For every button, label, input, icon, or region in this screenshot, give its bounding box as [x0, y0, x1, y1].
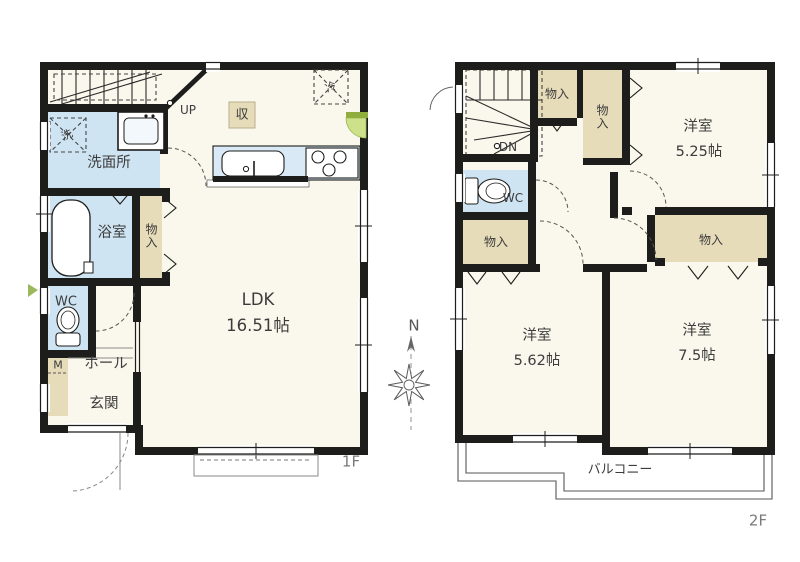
compass-north-label: N: [408, 319, 419, 334]
washroom-label: 洗面所: [87, 156, 131, 171]
kitchen-sink: [222, 151, 284, 176]
sliding-door: [133, 322, 141, 372]
compass-icon: [388, 336, 430, 430]
bath-stool: [84, 262, 93, 273]
storage-a-label: 物入: [545, 88, 569, 100]
plant-icon: [28, 284, 38, 297]
bedroom3-size-label: 7.5帖: [678, 349, 716, 364]
bedroom2-label: 洋室: [523, 329, 552, 344]
wc2-label: WC: [503, 192, 523, 204]
closet-label: 収: [235, 109, 248, 122]
storage1f-label: 物入: [145, 223, 157, 249]
meter-label: M: [53, 360, 63, 371]
stairs-dn-label: DN: [499, 141, 517, 153]
bedroom1-label: 洋室: [684, 120, 713, 135]
hall-label: ホール: [84, 357, 128, 372]
ldk-size-label: 16.51帖: [226, 318, 290, 335]
storage-b-label: 物入: [596, 104, 608, 130]
floor2-label: 2F: [749, 514, 767, 529]
toilet-1f: [56, 307, 80, 346]
vanity-sink: [118, 112, 164, 150]
floor-plan-drawing: [0, 0, 800, 562]
stairs-up-label: UP: [180, 104, 196, 116]
wc1-label: WC: [55, 296, 77, 309]
floor1-plan: [28, 60, 372, 491]
ldk-label: LDK: [242, 292, 275, 309]
storage-c-label: 物入: [484, 236, 508, 248]
floor-plan: UP 収 冷 洗 洗面所 浴室 物入 WC M ホール 玄関 LDK 16.51…: [0, 0, 800, 562]
bedroom2-size-label: 5.62帖: [514, 354, 561, 369]
floor1-label: 1F: [342, 455, 360, 470]
storage-d-label: 物入: [699, 234, 723, 246]
bedroom3-label: 洋室: [683, 324, 712, 339]
balcony-label: バルコニー: [588, 464, 653, 477]
bedroom1-size-label: 5.25帖: [676, 145, 723, 160]
entrance-label: 玄関: [90, 397, 119, 412]
bathroom-label: 浴室: [98, 226, 127, 241]
